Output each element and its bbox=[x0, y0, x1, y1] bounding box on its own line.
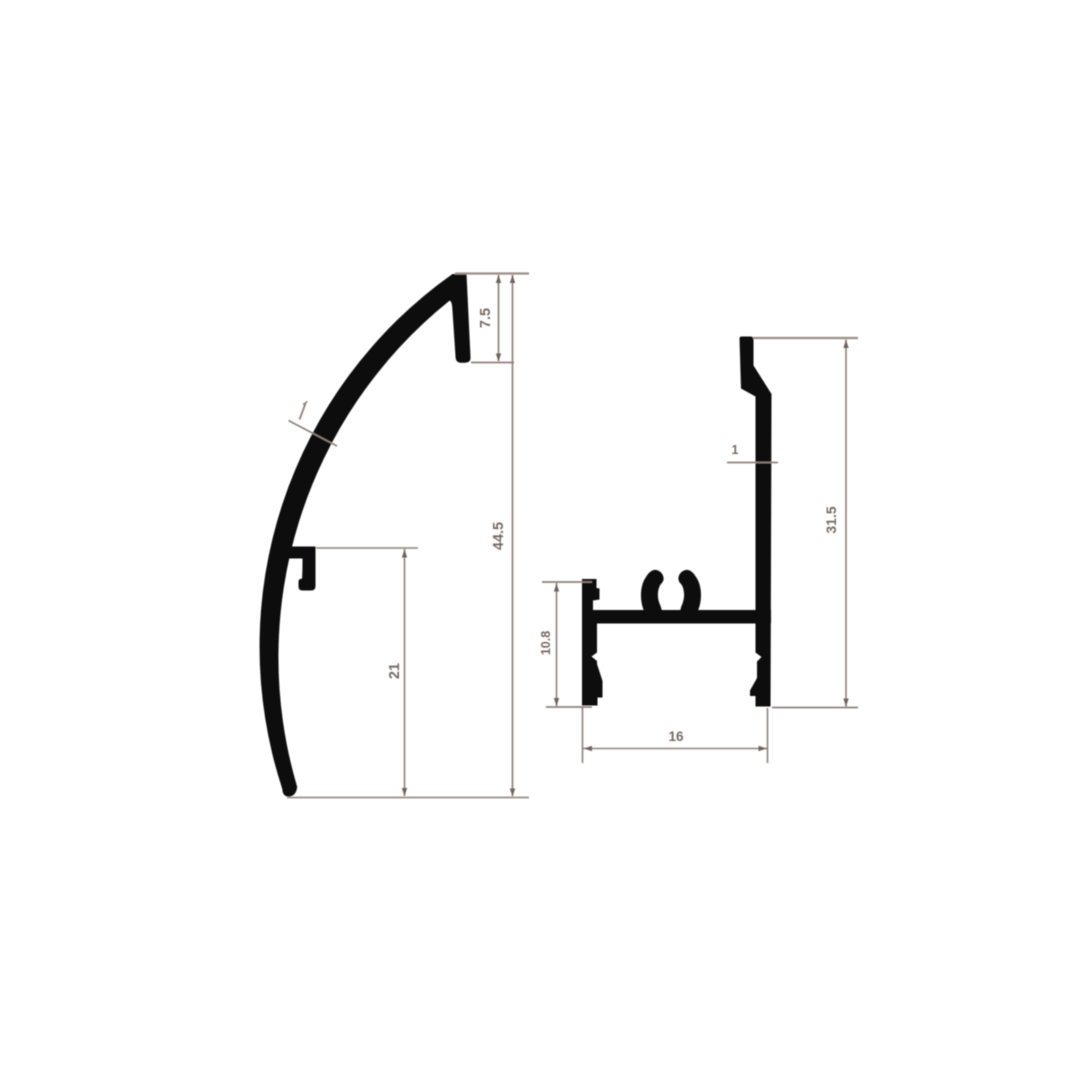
svg-text:1: 1 bbox=[732, 443, 739, 457]
svg-text:31.5: 31.5 bbox=[823, 506, 839, 533]
svg-text:21: 21 bbox=[387, 663, 403, 679]
svg-text:16: 16 bbox=[668, 729, 684, 744]
svg-text:44.5: 44.5 bbox=[491, 522, 507, 550]
svg-text:7.5: 7.5 bbox=[478, 308, 494, 328]
svg-text:10.8: 10.8 bbox=[539, 631, 553, 655]
